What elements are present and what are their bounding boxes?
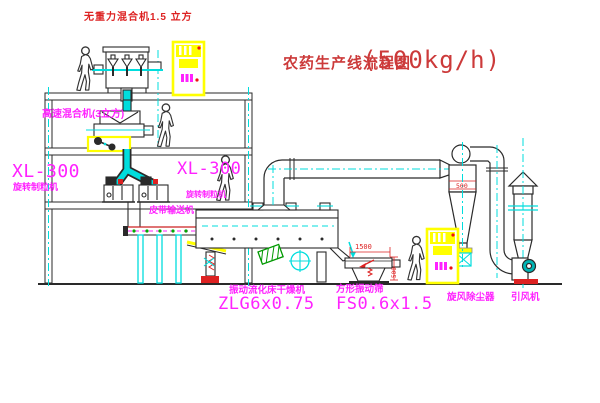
- control-cabinet-top: [173, 42, 204, 95]
- high-speed-mixer: [86, 100, 153, 151]
- granulator-right: [137, 177, 170, 202]
- control-cabinet-ground: [427, 229, 458, 283]
- label-granulator-mid-model: XL-300: [177, 161, 241, 178]
- fluid-bed-dryer: [187, 203, 350, 283]
- mixer-nozzles: [108, 55, 146, 76]
- dim-cyclone-outlet: 500: [456, 183, 468, 190]
- exhaust-duct: [264, 158, 462, 208]
- label-screen-model: FS0.6x1.5: [336, 296, 433, 313]
- discharge-duct: [128, 209, 140, 228]
- label-granulator-left-name: 旋转制粒机: [13, 183, 58, 192]
- fan-downpipe: [470, 145, 514, 278]
- label-fan: 引风机: [511, 293, 540, 303]
- induced-draft-fan: [512, 258, 538, 284]
- worker-roof: [77, 47, 93, 91]
- granulator-left: [102, 177, 135, 202]
- label-granulator-mid-name: 旋转制粒机: [186, 191, 226, 199]
- process-flow-drawing: 无重力混合机1.5 立方 农药生产线流程图 (500kg/h) 高速混合机(3立…: [0, 0, 600, 403]
- label-dryer-model: ZLG6x0.75: [218, 296, 315, 313]
- belt-conveyor: [123, 226, 197, 283]
- granulators: [102, 177, 170, 228]
- worker-level2: [158, 104, 174, 147]
- dim-screen-length: 1500: [355, 244, 372, 251]
- label-gravity-mixer: 无重力混合机1.5 立方: [84, 13, 193, 23]
- label-belt-conveyor: 皮带输送机: [149, 206, 194, 215]
- worker-ground: [408, 236, 424, 280]
- label-high-speed-mixer: 高速混合机(3立方): [42, 110, 124, 120]
- dim-screen-height: 500: [392, 267, 398, 278]
- label-granulator-left-model: XL-300: [12, 163, 80, 181]
- conveyor-legs: [138, 235, 181, 283]
- label-cyclone: 旋风除尘器: [447, 293, 495, 303]
- drawing-title-capacity: (500kg/h): [362, 48, 501, 72]
